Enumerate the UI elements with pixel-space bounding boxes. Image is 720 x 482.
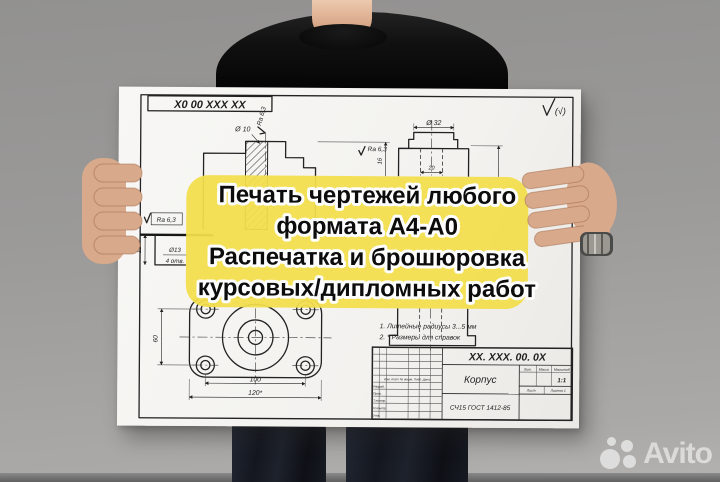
dim-d32: Ø 32 [425,120,441,127]
svg-text:Ra 6,3: Ra 6,3 [368,146,388,153]
title-block: Изм. Лист № докум. Подп. Дата Разраб. Пр… [372,347,572,420]
tb-mass-label: Масса [539,368,549,372]
advert-line-1: Печать чертежей любого [219,181,517,210]
dim-120: 120* [248,390,262,397]
avito-brand-text: Avito [643,437,712,471]
tb-change-header: Изм. Лист № докум. Подп. Дата [384,377,431,381]
roughness-general-label: (√) [555,106,566,116]
left-hand [80,148,144,272]
wrist-watch [580,232,613,256]
note-2: 2. * Размеры для справок [378,333,460,342]
tb-sheets-label: Листов 1 [550,389,566,393]
tb-row-prov: Пров. [373,392,382,396]
tb-lit-label: Лит. [523,368,532,372]
tb-row-nkontr: Н.контр. [373,406,387,410]
roughness-mid-label: Ra 6,3 [359,146,388,155]
advert-photo: Х0 00 ХХХ ХХ (√) Ra 6,3 12 [0,0,720,482]
designation-stamp: Х0 00 ХХХ ХХ [148,96,272,112]
tb-part-name: Корпус [464,375,497,386]
note-1: 1. Литейные радиусы 3...5 мм [380,322,477,331]
tb-scale-value: 1:1 [557,378,566,384]
drawing-notes: 1. Литейные радиусы 3...5 мм 2. * Размер… [378,322,476,342]
advert-line-2: формата А4-А0 [276,213,458,241]
stamp-code: Х0 00 ХХХ ХХ [173,99,246,111]
advert-overlay: Печать чертежей любого формата А4-А0 Рас… [176,169,539,315]
tb-material: СЧ15 ГОСТ 1412-85 [450,405,511,412]
blueprint-poster: Х0 00 ХХХ ХХ (√) Ra 6,3 12 [117,87,581,429]
dim-60: 60 [152,335,159,343]
right-hand [524,158,620,258]
advert-line-3: Распечатка и брошюровка [209,243,526,272]
avito-logo-icon [600,434,638,474]
avito-watermark: Avito [600,434,712,474]
tb-sheet-label: Лист [526,389,536,393]
shirt-collar [299,24,387,50]
dim-d10: Ø 10 [234,126,250,133]
tb-row-utv: Утв. [373,414,380,418]
dim-100: 100 [250,376,262,383]
tb-scale-label: Масштаб [554,368,570,372]
tb-row-razrab: Разраб. [373,385,385,389]
roughness-top-label: Ra 6,3 [254,106,272,135]
advert-line-4: курсовых/дипломных работ [198,274,537,303]
tb-designation: ХХ. ХХХ. 00. 0Х [468,351,547,363]
roughness-left-label: Ra 6,3 [157,217,177,224]
svg-text:Ra 6,3: Ra 6,3 [256,106,268,127]
dim-16: 16 [378,157,384,164]
tb-row-tkontr: Т.контр. [373,399,386,403]
roughness-general-icon: (√) [543,98,566,116]
